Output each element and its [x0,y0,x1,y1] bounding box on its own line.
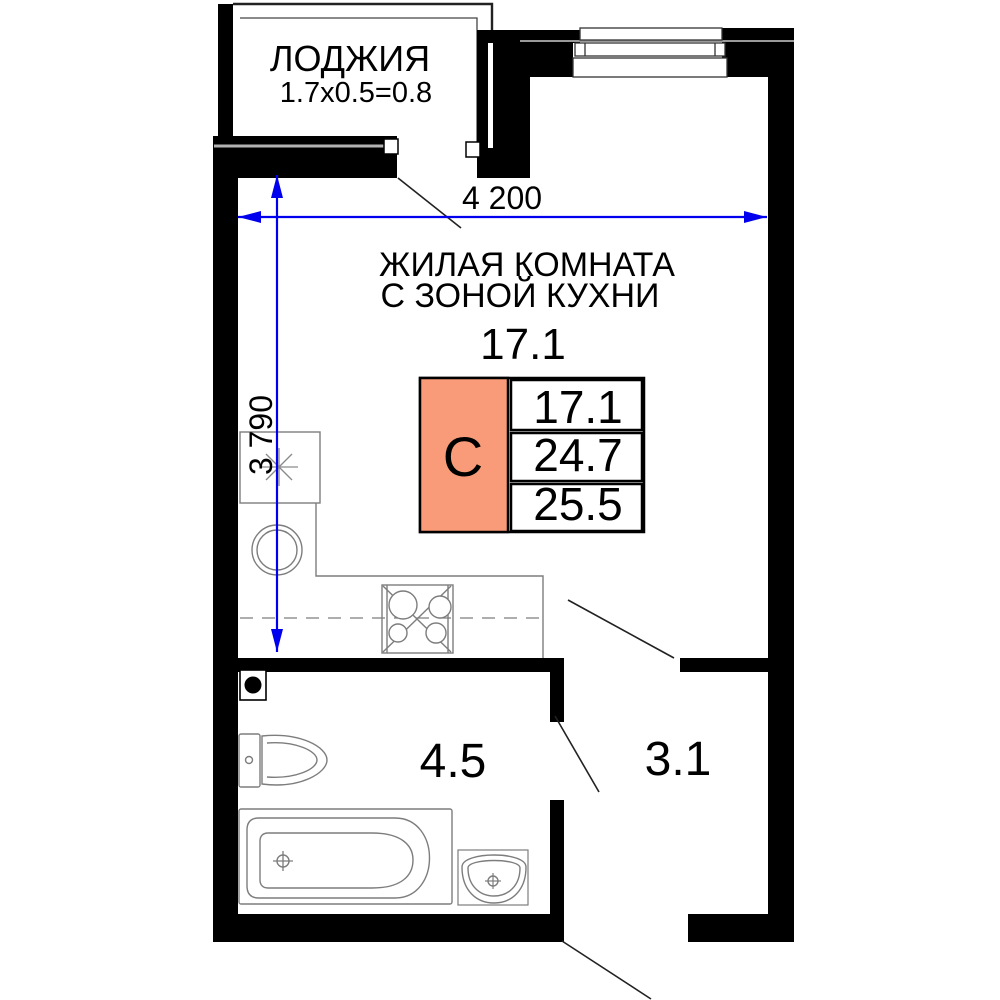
loggia-formula: 1.7x0.5=0.8 [280,77,432,109]
floor-plan-drawing: С 17.1 24.7 25.5 ЛОДЖИЯ 1.7x0.5=0.8 ЖИЛА… [0,0,1000,1000]
wall-hall-top [680,658,768,672]
hall-area: 3.1 [645,733,712,786]
arrow-left-icon [238,211,261,223]
wall-pier-right [530,43,573,77]
entrance-door-leaf [562,941,651,999]
burner [429,596,451,618]
wall-left-exterior [213,136,238,942]
wall-loggia-left [218,4,233,136]
loggia-glazing-gap [488,43,493,148]
arrow-right-icon [744,211,767,223]
bathroom-door-leaf [555,716,599,792]
living-room-area: 17.1 [480,320,566,369]
apartment-type-stamp: С 17.1 24.7 25.5 [420,378,644,532]
burner [426,623,446,643]
dimension-height-label: 3 790 [243,395,279,475]
stamp-living-area: 17.1 [533,381,623,433]
stamp-type-letter: С [443,425,483,488]
burner [389,624,407,642]
wall-right-exterior [768,28,794,942]
wall-pier [477,30,530,178]
window-outer-sill [580,28,722,40]
arrow-up-icon [271,175,283,198]
stove-icon [382,585,453,653]
stamp-total-area: 25.5 [533,478,623,530]
wall-loggia-window [213,136,397,178]
toilet-icon [239,734,327,787]
stamp-area-no-loggia: 24.7 [533,429,623,481]
bathroom-area: 4.5 [420,735,487,788]
wall-bottom-right [688,914,794,942]
floor-plan: С 17.1 24.7 25.5 ЛОДЖИЯ 1.7x0.5=0.8 ЖИЛА… [0,0,1000,1000]
balcony-door-leaf [398,178,461,228]
washbasin-icon [458,850,528,905]
wall-bottom [213,914,564,942]
dimension-width-label: 4 200 [462,180,542,216]
riser-dot-icon [245,677,262,694]
arrow-down-icon [271,629,283,652]
window-frame [575,43,725,56]
burner [389,591,417,619]
bathtub-icon [239,809,452,904]
loggia-label: ЛОДЖИЯ [270,38,430,79]
wall-bathroom-right-upper [550,658,564,722]
balcony-door-jamb-cap [466,142,480,157]
window-inner-sill [573,58,727,77]
living-room-title-line2: С ЗОНОЙ КУХНИ [381,277,660,315]
loggia-window-end-cap [384,139,398,154]
living-room-door-leaf [568,600,674,658]
